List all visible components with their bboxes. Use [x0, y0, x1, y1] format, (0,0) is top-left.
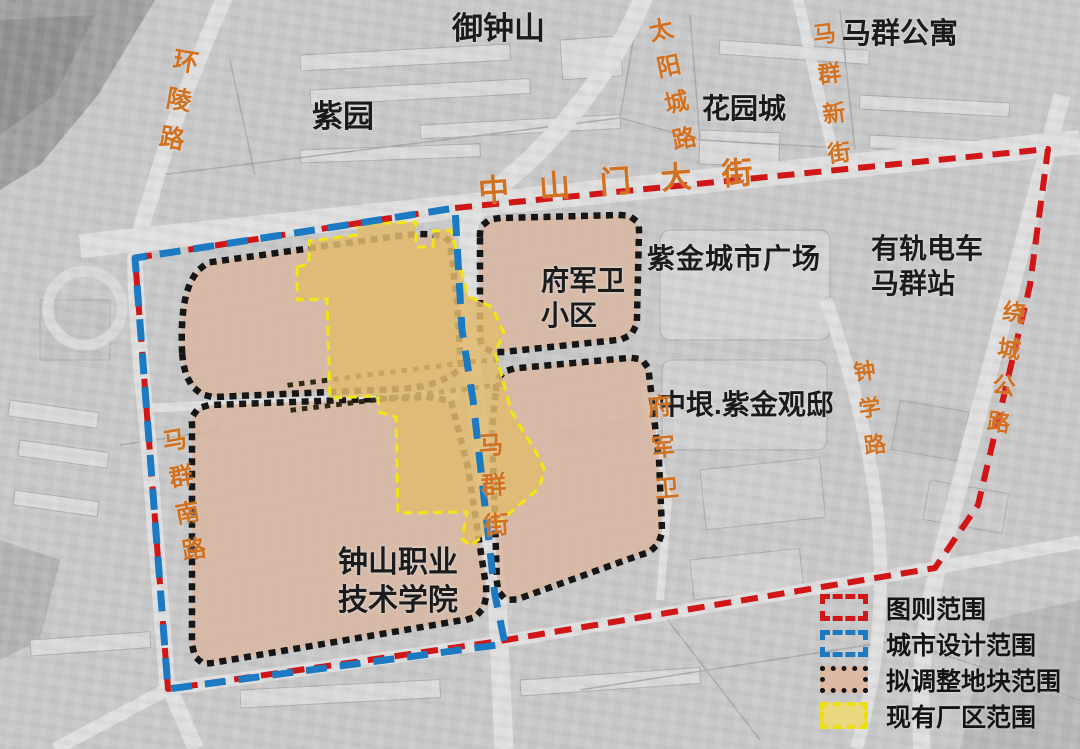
- area-label-maqun-apartments: 马群公寓: [842, 16, 958, 52]
- factory-area-label: 现有厂区范围: [886, 698, 1036, 734]
- area-label-zhongyin: 中垠.紫金观邸: [658, 387, 834, 422]
- urban-design-swatch: [820, 630, 868, 657]
- legend-row-plot-adjustment: 拟调整地块范围: [820, 665, 1061, 694]
- factory-area-swatch: [820, 702, 868, 729]
- zhongshan-college-line2: 技术学院: [338, 582, 458, 620]
- area-label-yuzhongshan: 御钟山: [452, 10, 545, 49]
- area-label-garden-city: 花园城: [702, 91, 786, 126]
- legend-row-factory-area: 现有厂区范围: [820, 701, 1061, 730]
- tram-station-line2: 马群站: [871, 266, 983, 301]
- plan-scope-label: 图则范围: [886, 590, 986, 626]
- legend: 图则范围 城市设计范围 拟调整地块范围 现有厂区范围: [820, 593, 1061, 730]
- legend-row-urban-design: 城市设计范围: [820, 629, 1061, 658]
- plan-scope-swatch: [820, 594, 868, 621]
- zhongshan-college-line1: 钟山职业: [338, 544, 458, 582]
- plot-adjustment-swatch: [820, 666, 868, 693]
- planning-map: 御钟山 紫园 马群公寓 花园城 紫金城市广场 有轨电车 马群站 府军卫 小区 中…: [0, 0, 1080, 749]
- fujunwei-community-line1: 府军卫: [541, 263, 625, 298]
- fujunwei-community-line2: 小区: [541, 298, 625, 333]
- legend-row-plan-scope: 图则范围: [820, 593, 1061, 622]
- area-label-tram-station: 有轨电车 马群站: [871, 231, 983, 301]
- area-label-ziyuan: 紫园: [312, 98, 374, 137]
- area-label-fujunwei-community: 府军卫 小区: [541, 263, 625, 333]
- area-label-zhongshan-college: 钟山职业 技术学院: [338, 544, 458, 619]
- urban-design-label: 城市设计范围: [886, 626, 1036, 662]
- plot-adjustment-label: 拟调整地块范围: [886, 662, 1061, 698]
- area-label-zijin-plaza: 紫金城市广场: [647, 241, 821, 276]
- tram-station-line1: 有轨电车: [871, 231, 983, 266]
